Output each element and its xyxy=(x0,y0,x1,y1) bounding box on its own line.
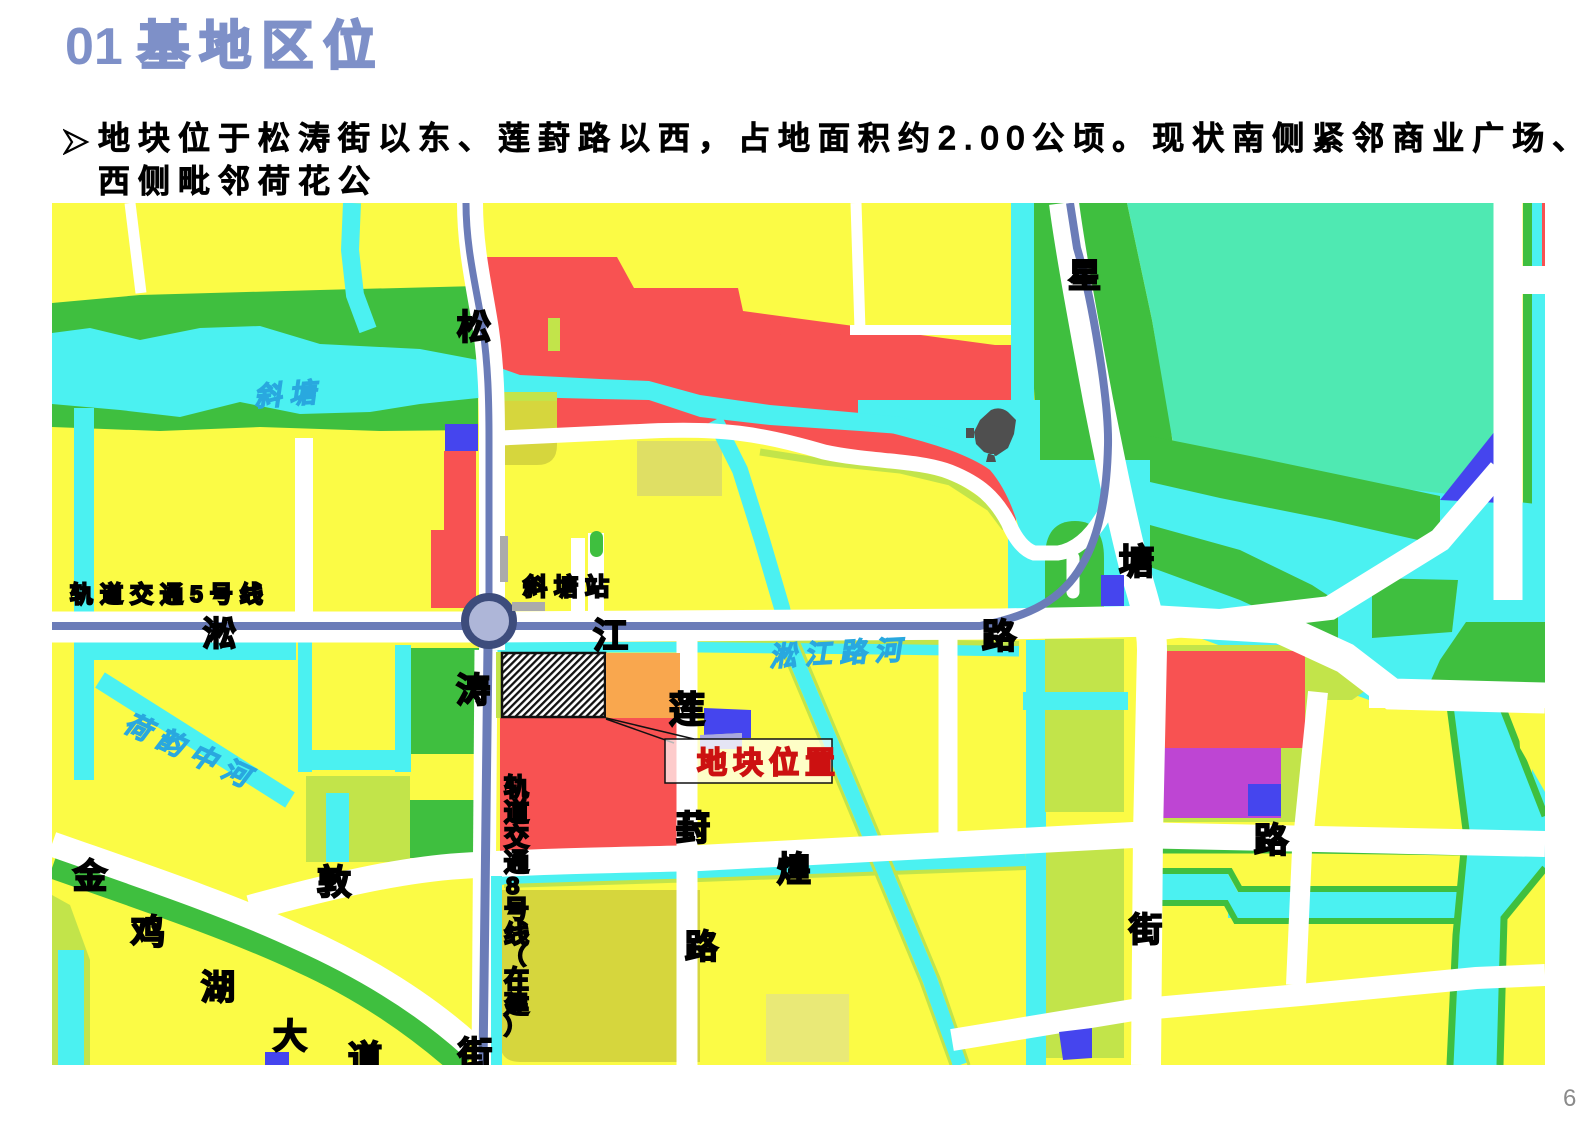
svg-text:在: 在 xyxy=(504,966,529,994)
svg-text:街: 街 xyxy=(1128,911,1162,948)
svg-text:葑: 葑 xyxy=(676,810,710,848)
svg-text:斜塘站: 斜塘站 xyxy=(522,573,616,601)
svg-text:敦: 敦 xyxy=(317,864,351,902)
svg-text:路: 路 xyxy=(982,618,1017,656)
svg-text:煌: 煌 xyxy=(777,851,811,889)
svg-text:松: 松 xyxy=(457,309,491,347)
svg-text:塘: 塘 xyxy=(1119,543,1154,582)
svg-text:涛: 涛 xyxy=(456,672,490,710)
svg-text:星: 星 xyxy=(1068,257,1101,294)
svg-text:金: 金 xyxy=(72,857,108,896)
svg-text:鸡: 鸡 xyxy=(131,914,165,952)
svg-text:斜塘: 斜塘 xyxy=(253,376,328,412)
svg-text:路: 路 xyxy=(1254,822,1289,860)
svg-text:地块位置: 地块位置 xyxy=(697,746,841,780)
svg-text:道: 道 xyxy=(348,1040,382,1065)
svg-text:路: 路 xyxy=(685,928,719,965)
svg-text:）: ） xyxy=(504,1014,526,1039)
svg-text:道: 道 xyxy=(504,798,529,827)
svg-text:轨: 轨 xyxy=(504,774,529,802)
svg-text:轨道交通5号线: 轨道交通5号线 xyxy=(70,581,270,607)
svg-text:大: 大 xyxy=(273,1018,307,1056)
svg-text:莲: 莲 xyxy=(669,689,705,730)
svg-text:街: 街 xyxy=(457,1036,492,1065)
svg-text:号: 号 xyxy=(504,896,529,924)
svg-text:湖: 湖 xyxy=(201,969,235,1007)
svg-text:交: 交 xyxy=(504,823,529,852)
svg-text:淞: 淞 xyxy=(203,615,236,652)
svg-text:江: 江 xyxy=(593,617,628,656)
